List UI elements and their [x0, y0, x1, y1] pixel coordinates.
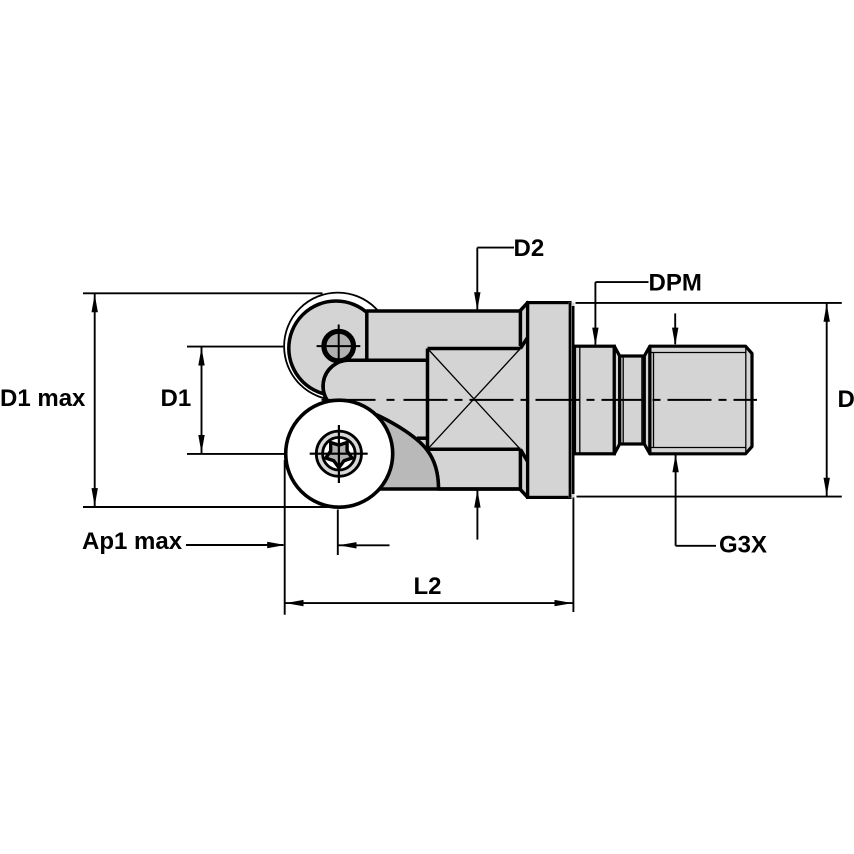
svg-text:D1 max: D1 max [0, 385, 86, 412]
svg-text:D1: D1 [161, 385, 192, 412]
svg-text:D: D [838, 386, 854, 413]
svg-text:L2: L2 [414, 573, 442, 600]
svg-text:D2: D2 [514, 235, 545, 262]
svg-text:DPM: DPM [649, 270, 702, 297]
svg-text:G3X: G3X [719, 532, 767, 559]
svg-text:Ap1 max: Ap1 max [82, 528, 183, 555]
